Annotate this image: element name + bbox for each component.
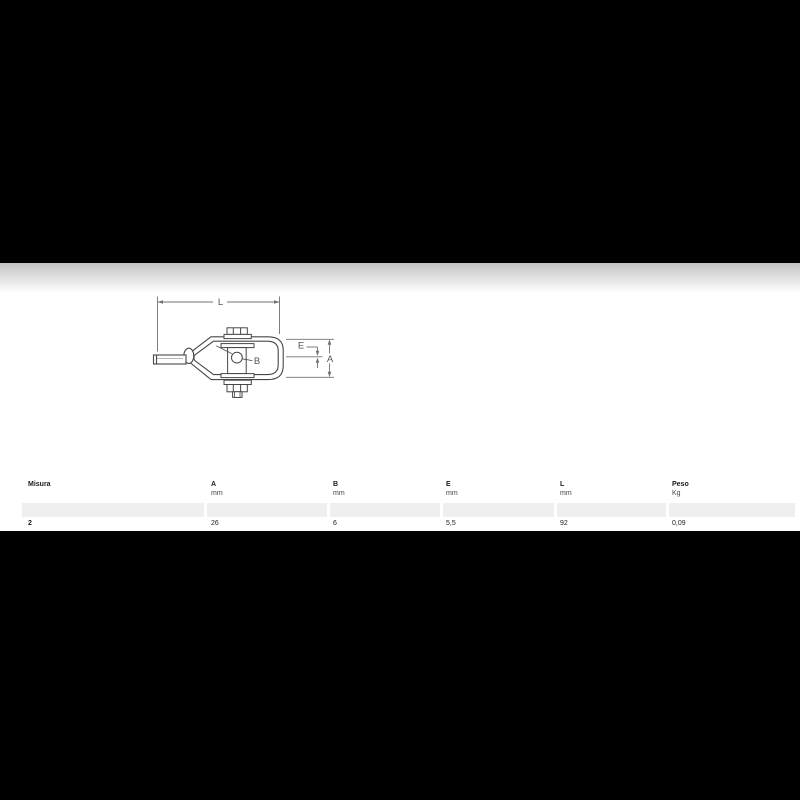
page: L E A B Misura A B E L Peso mm mm mm mm … xyxy=(0,0,800,800)
table-row-stripe xyxy=(330,503,440,517)
cell-b: 6 xyxy=(333,520,337,528)
table-row-stripe xyxy=(22,503,204,517)
table-row-stripe xyxy=(557,503,666,517)
strainer-body xyxy=(154,337,284,380)
top-nut xyxy=(227,328,247,335)
label-B: B xyxy=(254,356,260,367)
cell-e: 5,5 xyxy=(446,520,456,528)
wire-hole xyxy=(232,352,243,363)
top-washer xyxy=(224,334,251,338)
column-header-peso: Peso xyxy=(672,481,689,489)
bottom-flange xyxy=(221,374,254,378)
table-row-stripe xyxy=(669,503,795,517)
cell-misura: 2 xyxy=(28,520,32,528)
cell-peso: 0,09 xyxy=(672,520,686,528)
bottom-washer xyxy=(224,380,251,384)
table-row-stripe xyxy=(443,503,554,517)
technical-drawing: L E A B xyxy=(140,290,350,402)
bottom-nut xyxy=(227,385,247,392)
cell-a: 26 xyxy=(211,520,219,528)
hook-rod xyxy=(154,355,187,364)
column-header-e: E xyxy=(446,481,451,489)
table-row-stripe xyxy=(207,503,327,517)
label-L: L xyxy=(218,297,223,308)
column-header-l: L xyxy=(560,481,564,489)
column-unit-e: mm xyxy=(446,490,458,498)
cell-l: 92 xyxy=(560,520,568,528)
top-flange xyxy=(221,344,254,348)
column-unit-peso: Kg xyxy=(672,490,681,498)
column-header-b: B xyxy=(333,481,338,489)
column-unit-l: mm xyxy=(560,490,572,498)
column-header-misura: Misura xyxy=(28,481,51,489)
label-E: E xyxy=(298,341,304,352)
wire-strainer-diagram: L E A B xyxy=(140,290,350,402)
column-unit-a: mm xyxy=(211,490,223,498)
column-unit-b: mm xyxy=(333,490,345,498)
top-shadow-gradient xyxy=(0,263,800,293)
column-header-a: A xyxy=(211,481,216,489)
label-A: A xyxy=(327,354,334,365)
